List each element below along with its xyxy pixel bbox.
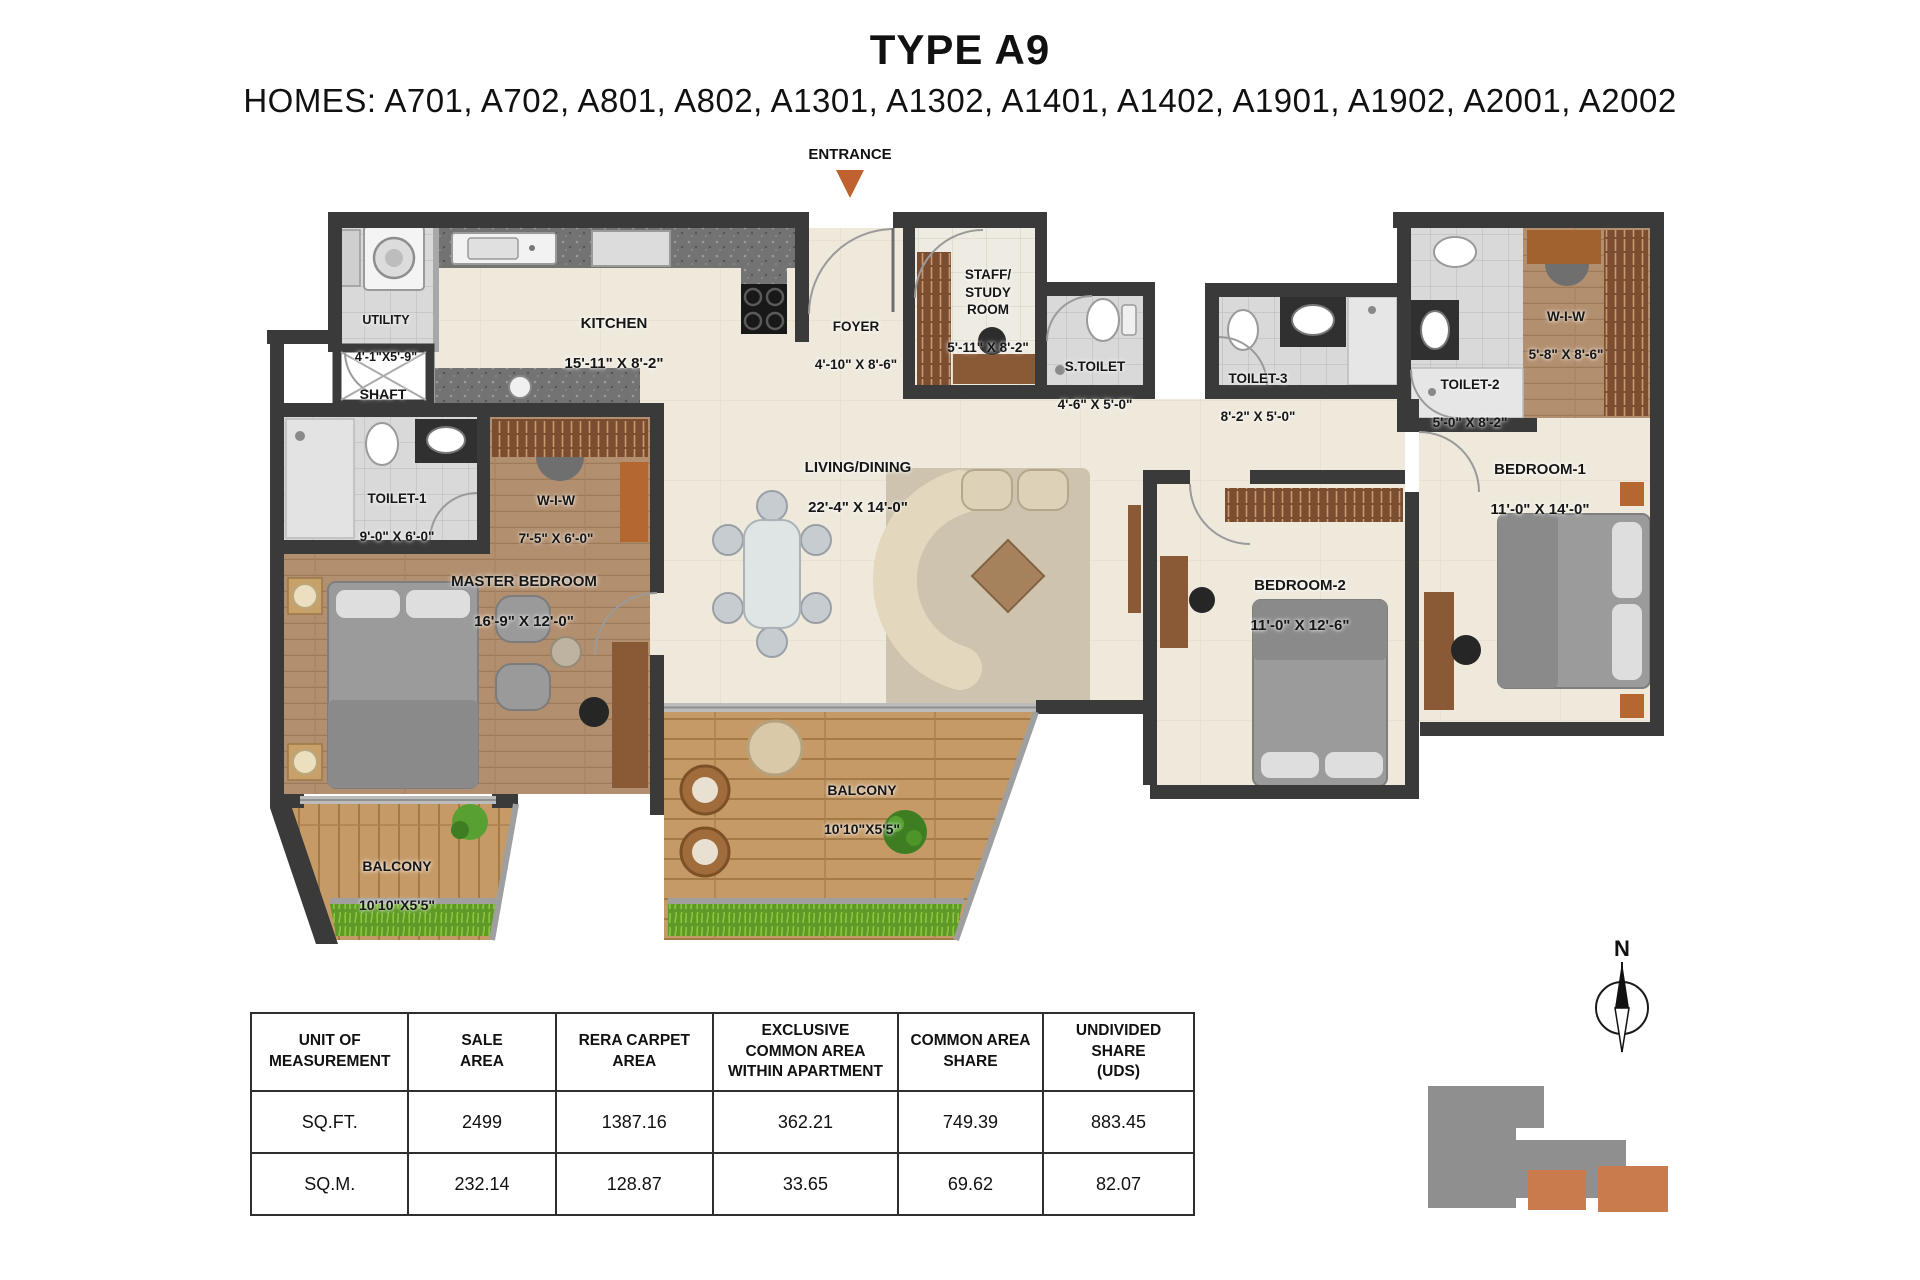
- label-staff-study: STAFF/ STUDY ROOM 5'-11" X 8'-2": [947, 246, 1029, 376]
- room-dims: 15'-11" X 8'-2": [565, 354, 664, 373]
- entrance-label: ENTRANCE: [808, 146, 891, 163]
- room-name: BALCONY: [359, 858, 435, 876]
- cell-exclusive-common: 33.65: [713, 1153, 898, 1215]
- col-header-rera-carpet: RERA CARPET AREA: [556, 1013, 713, 1091]
- label-kitchen: KITCHEN 15'-11" X 8'-2": [565, 294, 664, 394]
- entrance-arrow-icon: [836, 170, 864, 198]
- label-bedroom-2: BEDROOM-2 11'-0" X 12'-6": [1251, 556, 1350, 656]
- label-s-toilet: S.TOILET 4'-6" X 5'-0": [1058, 338, 1133, 434]
- page: TYPE A9 HOMES: A701, A702, A801, A802, A…: [0, 0, 1920, 1280]
- room-name: SHAFT: [360, 386, 407, 404]
- cell-unit: SQ.M.: [251, 1153, 408, 1215]
- room-dims: 5'-11" X 8'-2": [947, 339, 1029, 356]
- room-dims: 10'10"X5'5": [824, 821, 900, 839]
- room-dims: 5'-0" X 8'-2": [1433, 414, 1508, 431]
- cell-uds: 883.45: [1043, 1091, 1194, 1153]
- north-compass-icon: [1596, 962, 1648, 1052]
- label-master-bedroom: MASTER BEDROOM 16'-9" X 12'-0": [451, 552, 597, 652]
- col-header-common-share: COMMON AREA SHARE: [898, 1013, 1043, 1091]
- room-name: BEDROOM-1: [1491, 460, 1590, 479]
- cell-rera-carpet: 1387.16: [556, 1091, 713, 1153]
- cell-unit: SQ.FT.: [251, 1091, 408, 1153]
- room-dims: 10'10"X5'5": [359, 897, 435, 915]
- label-bedroom-1: BEDROOM-1 11'-0" X 14'-0": [1491, 440, 1590, 540]
- table-row: SQ.M. 232.14 128.87 33.65 69.62 82.07: [251, 1153, 1194, 1215]
- label-shaft: SHAFT: [360, 366, 407, 425]
- room-name: S.TOILET: [1058, 358, 1133, 375]
- col-header-uds: UNDIVIDED SHARE (UDS): [1043, 1013, 1194, 1091]
- room-dims: 7'-5" X 6'-0": [519, 530, 594, 547]
- cell-common-share: 749.39: [898, 1091, 1043, 1153]
- area-table: UNIT OF MEASUREMENT SALE AREA RERA CARPE…: [250, 1012, 1195, 1216]
- room-name: TOILET-3: [1221, 370, 1296, 387]
- table-row: SQ.FT. 2499 1387.16 362.21 749.39 883.45: [251, 1091, 1194, 1153]
- key-plan: [1428, 1086, 1668, 1212]
- plan-type-title: TYPE A9: [0, 26, 1920, 74]
- cell-common-share: 69.62: [898, 1153, 1043, 1215]
- room-dims: 4'-6" X 5'-0": [1058, 396, 1133, 413]
- label-foyer: FOYER 4'-10" X 8'-6": [815, 298, 897, 394]
- label-toilet-2: TOILET-2 5'-0" X 8'-2": [1433, 356, 1508, 452]
- cell-sale-area: 232.14: [408, 1153, 555, 1215]
- room-dims: 11'-0" X 12'-6": [1251, 616, 1350, 635]
- room-dims: 5'-8" X 8'-6": [1529, 346, 1604, 363]
- room-dims: 4'-10" X 8'-6": [815, 356, 897, 373]
- room-name: MASTER BEDROOM: [451, 572, 597, 591]
- room-dims: 4'-1"X5'-9": [355, 349, 417, 365]
- room-dims: 22'-4" X 14'-0": [805, 498, 912, 517]
- homes-list: HOMES: A701, A702, A801, A802, A1301, A1…: [0, 82, 1920, 120]
- room-name: TOILET-2: [1433, 376, 1508, 393]
- label-balcony-left: BALCONY 10'10"X5'5": [359, 838, 435, 935]
- label-toilet-3: TOILET-3 8'-2" X 5'-0": [1221, 350, 1296, 446]
- col-header-sale-area: SALE AREA: [408, 1013, 555, 1091]
- room-name: BEDROOM-2: [1251, 576, 1350, 595]
- room-name: FOYER: [815, 318, 897, 335]
- cell-uds: 82.07: [1043, 1153, 1194, 1215]
- cell-rera-carpet: 128.87: [556, 1153, 713, 1215]
- cell-exclusive-common: 362.21: [713, 1091, 898, 1153]
- table-header-row: UNIT OF MEASUREMENT SALE AREA RERA CARPE…: [251, 1013, 1194, 1091]
- col-header-unit: UNIT OF MEASUREMENT: [251, 1013, 408, 1091]
- room-name: TOILET-1: [360, 490, 435, 507]
- col-header-exclusive-common: EXCLUSIVE COMMON AREA WITHIN APARTMENT: [713, 1013, 898, 1091]
- north-label: N: [1614, 936, 1630, 962]
- room-name: UTILITY: [355, 312, 417, 328]
- room-dims: 11'-0" X 14'-0": [1491, 500, 1590, 519]
- cell-sale-area: 2499: [408, 1091, 555, 1153]
- room-name: STAFF/ STUDY ROOM: [947, 266, 1029, 318]
- room-name: W-I-W: [1529, 308, 1604, 325]
- label-wiw-ne: W-I-W 5'-8" X 8'-6": [1529, 288, 1604, 384]
- room-name: KITCHEN: [565, 314, 664, 333]
- room-name: LIVING/DINING: [805, 458, 912, 477]
- room-dims: 16'-9" X 12'-0": [451, 612, 597, 631]
- label-living-dining: LIVING/DINING 22'-4" X 14'-0": [805, 438, 912, 538]
- label-balcony-mid: BALCONY 10'10"X5'5": [824, 762, 900, 859]
- room-name: W-I-W: [519, 492, 594, 509]
- room-dims: 9'-0" X 6'-0": [360, 528, 435, 545]
- room-name: BALCONY: [824, 782, 900, 800]
- label-toilet-1: TOILET-1 9'-0" X 6'-0": [360, 470, 435, 566]
- room-dims: 8'-2" X 5'-0": [1221, 408, 1296, 425]
